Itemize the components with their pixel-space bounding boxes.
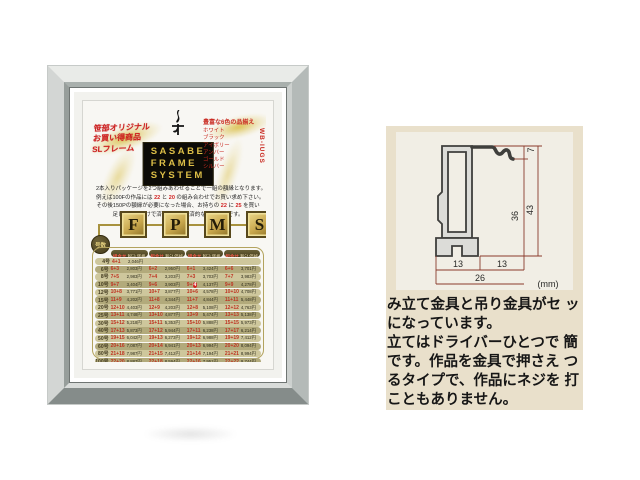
text-segment: 例えば100Fの作品には	[96, 195, 154, 201]
table-row: 6号6+32,803円6+22,950円6+13,424円6+63,701円	[95, 266, 261, 273]
price-cell: 12+124,763円	[223, 305, 261, 311]
combo-value: 20+13	[187, 343, 203, 349]
price-value: 3,771円	[127, 289, 142, 295]
price-value: 4,278円	[241, 282, 256, 288]
dim-13-left: 13	[453, 259, 463, 269]
price-cell: 22+188,594円	[147, 359, 185, 362]
price-value: 4,877円	[165, 312, 180, 318]
price-value: 5,944円	[165, 328, 180, 334]
combo-value: 13+9	[187, 312, 203, 318]
price-cell: 11+115,448円	[223, 297, 261, 303]
row-size-label: 100号	[95, 358, 109, 362]
combo-header-label: 組合せ	[150, 254, 164, 257]
combo-value: 7+5	[111, 274, 127, 280]
highlight-dot: 4	[193, 282, 198, 288]
spec-text-line: こともありません。	[387, 391, 582, 410]
combo-value: 7+7	[225, 274, 241, 280]
text-segment: の組み合わせでお買い求め下さい。	[175, 195, 265, 201]
combo-value: 11+8	[149, 297, 165, 303]
table-row: 12号10+83,771円10+73,877円10+64,578円10+104,…	[95, 289, 261, 296]
price-value: 2,983円	[127, 274, 142, 280]
fpms-box-f: F	[120, 211, 147, 238]
dim-43: 43	[525, 205, 535, 215]
combo-value: 10+10	[225, 289, 241, 295]
price-header-label: 税込価格	[201, 254, 220, 257]
price-cell: 15+105,888円	[185, 320, 223, 326]
price-cell: 13+114,748円	[109, 312, 147, 318]
combo-value: 21+18	[111, 351, 127, 357]
price-cell: 4+12,046円	[110, 259, 152, 265]
poster: 笹部オリジナルお買い得商品SLフレーム SASABEFRAMESYSTEM 豊富…	[90, 108, 266, 362]
price-value: 8,994円	[241, 351, 256, 357]
combo-value: 13+13	[225, 312, 241, 318]
spec-text-line: になっています。	[387, 315, 582, 334]
price-header-label: 税込価格	[164, 254, 183, 257]
brand-line: FRAME	[151, 158, 206, 170]
fpms-box-m: M	[204, 211, 231, 238]
combo-value: 19+15	[111, 335, 127, 341]
table-row: 8号7+52,983円7+43,203円7+33,703円7+73,983円	[95, 273, 261, 280]
row-size-label: 6号	[95, 266, 109, 273]
combo-value: 17+12	[149, 328, 165, 334]
dim-36: 36	[510, 211, 520, 221]
row-size-label: 40号	[95, 327, 109, 334]
text-segment: を買い	[242, 203, 260, 209]
combo-header-label: 組合せ	[113, 254, 127, 257]
aluminum-frame-lip: 笹部オリジナルお買い得商品SLフレーム SASABEFRAMESYSTEM 豊富…	[64, 82, 292, 388]
combo-value: 22+18	[149, 359, 165, 362]
description-line: 2本入りパッケージを2つ組みあわせることで一組の額縁となります。	[96, 185, 260, 194]
price-cell: 7+52,983円	[109, 274, 147, 280]
price-cell: 10+104,708円	[223, 289, 261, 295]
price-cell: 17+135,873円	[109, 328, 147, 334]
combo-value: 6+2	[149, 266, 165, 272]
fpms-row: FPMS 号数	[90, 211, 266, 243]
price-value: 6,273円	[165, 335, 180, 341]
table-row: 25号13+114,748円13+104,877円13+95,474円13+13…	[95, 312, 261, 319]
price-header-label: 税込価格	[239, 254, 258, 257]
dim-26: 26	[475, 273, 485, 283]
price-value: 5,353円	[165, 320, 180, 326]
price-cell: 9+94,278円	[223, 282, 261, 288]
price-table: 組合せ 税込価格組合せ 税込価格組合せ 税込価格組合せ 税込価格 4号4+12,…	[92, 247, 264, 359]
spec-text-line: です。作品を金具で押さえ つ	[387, 353, 582, 372]
combo-value: 11+11	[225, 297, 241, 303]
table-row: 4号4+12,046円	[95, 258, 261, 265]
spec-text-line: 立てはドライバーひとつで 簡	[387, 334, 582, 353]
combo-value: 20+20	[225, 343, 241, 349]
combo-value: 11+7	[187, 297, 203, 303]
row-size-label: 12号	[95, 289, 109, 296]
combo-value: 19+13	[149, 335, 165, 341]
price-cell: 21+218,994円	[223, 351, 261, 357]
price-cell: 7+43,203円	[147, 274, 185, 280]
combo-value: 9+9	[225, 282, 241, 288]
combo-value: 15+11	[149, 320, 165, 326]
price-value: 4,763円	[241, 305, 256, 311]
price-cell: 6+63,701円	[223, 266, 261, 272]
table-row: 60号20+167,087円20+146,941円20+136,994円20+2…	[95, 343, 261, 350]
price-value: 5,888円	[203, 320, 218, 326]
description-line: その後150Pの額縁が必要になった場合、お持ちの 22 に 25 を買い	[96, 202, 260, 211]
price-cell: 11+84,344円	[147, 297, 185, 303]
dim-unit: (mm)	[538, 279, 559, 289]
price-cell: 7+73,983円	[223, 274, 261, 280]
price-value: 3,877円	[165, 289, 180, 295]
table-header-badge: 組合せ 税込価格	[224, 250, 261, 257]
price-cell: 9+44,137円	[185, 282, 223, 288]
fpms-box-p: P	[162, 211, 189, 238]
spec-panel: 7 36 43 13 13 26 (mm) み立て金具と吊り金具がセ ッになって…	[386, 126, 583, 410]
row-size-label: 30号	[95, 320, 109, 327]
combo-value: 20+14	[149, 343, 165, 349]
price-cell: 17+125,944円	[147, 328, 185, 334]
price-value: 4,202円	[127, 297, 142, 303]
price-value: 3,703円	[203, 274, 218, 280]
brand-line: SASABE	[151, 146, 206, 158]
table-row: 20号12+104,403円12+94,203円12+85,108円12+124…	[95, 304, 261, 311]
price-value: 6,941円	[165, 343, 180, 349]
price-value: 6,238円	[203, 328, 218, 334]
table-row: 15号11+94,202円11+84,344円11+74,844円11+115,…	[95, 296, 261, 303]
dim-7: 7	[526, 147, 536, 152]
price-cell: 9+73,404円	[109, 282, 147, 288]
fpms-box-s: S	[246, 211, 266, 238]
price-value: 7,412円	[241, 335, 256, 341]
price-value: 7,087円	[127, 343, 142, 349]
price-value: 2,803円	[127, 266, 142, 272]
price-value: 5,973円	[241, 320, 256, 326]
combo-value: 12+12	[225, 305, 241, 311]
price-cell: 12+85,108円	[185, 305, 223, 311]
price-cell: 19+156,042円	[109, 335, 147, 341]
floor-shadow	[143, 426, 238, 442]
price-value: 9,744円	[241, 359, 256, 362]
table-row: 10号9+73,404円9+63,903円9+44,137円9+94,278円	[95, 281, 261, 288]
price-value: 5,448円	[241, 297, 256, 303]
combo-value: 7+4	[149, 274, 165, 280]
combo-value: 12+9	[149, 305, 165, 311]
price-cell: 10+64,578円	[185, 289, 223, 295]
price-cell: 17+176,214円	[223, 328, 261, 334]
combo-value: 22+22	[225, 359, 241, 362]
page: 笹部オリジナルお買い得商品SLフレーム SASABEFRAMESYSTEM 豊富…	[0, 0, 640, 480]
combo-value: 13+10	[149, 312, 165, 318]
price-value: 7,412円	[165, 351, 180, 357]
combo-value: 10+6	[187, 289, 203, 295]
price-cell: 10+73,877円	[147, 289, 185, 295]
price-cell: 6+13,424円	[185, 266, 223, 272]
text-segment: と	[160, 195, 169, 201]
price-cell: 20+208,094円	[223, 343, 261, 349]
sasabe-bird-logo-icon	[169, 109, 187, 144]
price-cell: 7+33,703円	[185, 274, 223, 280]
text-segment: 2本入りパッケージを2つ組みあわせることで一組の額縁となります。	[96, 186, 266, 192]
price-value: 6,988円	[203, 335, 218, 341]
price-value: 3,203円	[165, 274, 180, 280]
color-option: ブラック	[203, 135, 256, 142]
description-line: 例えば100Fの作品には 22 と 20 の組み合わせでお買い求め下さい。	[96, 194, 260, 203]
price-value: 7,987円	[127, 351, 142, 357]
price-value: 5,138円	[241, 312, 256, 318]
row-size-label: 50号	[95, 335, 109, 342]
price-cell: 13+135,138円	[223, 312, 261, 318]
table-row: 30号15+125,218円15+115,353円15+105,888円15+1…	[95, 320, 261, 327]
color-option: アイボリー	[203, 143, 256, 150]
combo-value: 21+14	[187, 351, 203, 357]
combo-value: 6+3	[111, 266, 127, 272]
combo-value: 11+9	[111, 297, 127, 303]
price-value: 4,748円	[127, 312, 142, 318]
combo-value: 22+20	[111, 359, 127, 362]
combo-value: 9+6	[149, 282, 165, 288]
price-value: 2,046円	[128, 259, 143, 265]
brand-line: SYSTEM	[151, 170, 206, 182]
combo-value: 12+8	[187, 305, 203, 311]
combo-value: 9+7	[111, 282, 127, 288]
price-cell: 15+115,353円	[147, 320, 185, 326]
combo-value: 15+10	[187, 320, 203, 326]
combo-value: 6+6	[225, 266, 241, 272]
price-value: 6,214円	[241, 328, 256, 334]
table-row: 80号21+187,987円21+157,412円21+147,194円21+2…	[95, 350, 261, 357]
price-cell: 15+155,973円	[223, 320, 261, 326]
combo-value: 15+15	[225, 320, 241, 326]
price-value: 2,950円	[165, 266, 180, 272]
color-codes-vertical: WB-IUGS	[258, 128, 265, 172]
combo-value: 19+19	[225, 335, 241, 341]
combo-value: 12+10	[111, 305, 127, 311]
color-lineup: 豊富な6色の品揃え ホワイトブラックアイボリーアンバーゴールドシルバー WB-I…	[203, 117, 265, 172]
price-cell: 20+167,087円	[109, 343, 147, 349]
combo-value: 17+17	[225, 328, 241, 334]
price-value: 8,594円	[165, 359, 180, 362]
table-row: 40号17+135,873円17+125,944円17+116,238円17+1…	[95, 327, 261, 334]
row-size-label: 8号	[95, 273, 109, 280]
combo-value: 13+11	[111, 312, 127, 318]
price-cell: 10+83,771円	[109, 289, 147, 295]
combo-value: 17+13	[111, 328, 127, 334]
profile-diagram-svg: 7 36 43 13 13 26 (mm)	[396, 132, 573, 290]
price-value: 5,873円	[127, 328, 142, 334]
price-cell: 13+95,474円	[185, 312, 223, 318]
table-row: 100号22+208,887円22+188,594円22+167,951円22+…	[95, 358, 261, 362]
price-cell: 12+104,403円	[109, 305, 147, 311]
combo-value: 4+1	[112, 259, 128, 265]
price-value: 8,094円	[241, 343, 256, 349]
combo-value: 7+3	[187, 274, 203, 280]
price-cell: 22+229,744円	[223, 359, 261, 362]
color-name-list: ホワイトブラックアイボリーアンバーゴールドシルバー	[203, 128, 256, 172]
price-header-label: 税込価格	[126, 254, 145, 257]
spec-text-line: み立て金具と吊り金具がセ ッ	[387, 296, 582, 315]
price-cell: 6+22,950円	[147, 266, 185, 272]
combo-value: 22+16	[187, 359, 203, 362]
combo-value: 19+12	[187, 335, 203, 341]
price-value: 4,203円	[165, 305, 180, 311]
price-value: 3,701円	[241, 266, 256, 272]
frame-photo: 笹部オリジナルお買い得商品SLフレーム SASABEFRAMESYSTEM 豊富…	[48, 66, 308, 404]
price-cell: 9+63,903円	[147, 282, 185, 288]
price-value: 3,424円	[203, 266, 218, 272]
price-cell: 19+126,988円	[185, 335, 223, 341]
price-cell: 19+197,412円	[223, 335, 261, 341]
combo-value: 20+16	[111, 343, 127, 349]
price-value: 7,951円	[203, 359, 218, 362]
price-value: 5,474円	[203, 312, 218, 318]
table-header-badge: 組合せ 税込価格	[149, 250, 186, 257]
price-value: 6,042円	[127, 335, 142, 341]
combo-value: 21+15	[149, 351, 165, 357]
price-cell: 22+167,951円	[185, 359, 223, 362]
price-cell: 22+208,887円	[109, 359, 147, 362]
row-size-label: 80号	[95, 350, 109, 357]
combo-value: 10+8	[111, 289, 127, 295]
price-value: 4,344円	[165, 297, 180, 303]
combo-header-label: 組合せ	[188, 254, 202, 257]
table-row: 50号19+156,042円19+136,273円19+126,988円19+1…	[95, 335, 261, 342]
price-value: 5,108円	[203, 305, 218, 311]
price-value: 7,194円	[203, 351, 218, 357]
price-cell: 21+157,412円	[147, 351, 185, 357]
row-size-label: 4号	[95, 258, 110, 265]
row-size-label: 10号	[95, 281, 109, 288]
text-segment: その後150Pの額縁が必要になった場合、お持ちの	[96, 203, 220, 209]
price-cell: 15+125,218円	[109, 320, 147, 326]
combo-value: 10+7	[149, 289, 165, 295]
spec-text-line: るタイプで、作品にネジを 打	[387, 372, 582, 391]
price-cell: 11+94,202円	[109, 297, 147, 303]
price-value: 4,708円	[241, 289, 256, 295]
combo-value: 21+21	[225, 351, 241, 357]
price-value: 3,903円	[165, 282, 180, 288]
color-option: シルバー	[203, 164, 256, 171]
price-cell: 20+146,941円	[147, 343, 185, 349]
combo-header-label: 組合せ	[225, 254, 239, 257]
price-cell: 19+136,273円	[147, 335, 185, 341]
combo-value: 15+12	[111, 320, 127, 326]
frame-mat: 笹部オリジナルお買い得商品SLフレーム SASABEFRAMESYSTEM 豊富…	[74, 92, 282, 378]
price-cell: 6+32,803円	[109, 266, 147, 272]
row-size-label: 15号	[95, 297, 109, 304]
price-cell: 21+147,194円	[185, 351, 223, 357]
row-size-label: 25号	[95, 312, 109, 319]
table-header-badge: 組合せ 税込価格	[111, 250, 148, 257]
row-size-label: 60号	[95, 343, 109, 350]
table-header-badge: 組合せ 税込価格	[186, 250, 223, 257]
profile-cross-section-diagram: 7 36 43 13 13 26 (mm)	[396, 132, 573, 290]
price-cell: 13+104,877円	[147, 312, 185, 318]
combo-value: 17+11	[187, 328, 203, 334]
price-value: 4,844円	[203, 297, 218, 303]
price-cell: 20+136,994円	[185, 343, 223, 349]
price-table-header: 組合せ 税込価格組合せ 税込価格組合せ 税込価格組合せ 税込価格	[111, 250, 261, 257]
price-cell: 21+187,987円	[109, 351, 147, 357]
price-value: 3,404円	[127, 282, 142, 288]
row-size-label: 20号	[95, 304, 109, 311]
color-lineup-heading: 豊富な6色の品揃え	[203, 117, 265, 126]
price-cell: 11+74,844円	[185, 297, 223, 303]
combo-value: 9+4	[187, 282, 203, 288]
dim-13-right: 13	[497, 259, 507, 269]
combo-value: 6+1	[187, 266, 203, 272]
price-value: 6,994円	[203, 343, 218, 349]
price-value: 4,403円	[127, 305, 142, 311]
price-value: 4,137円	[203, 282, 218, 288]
price-value: 5,218円	[127, 320, 142, 326]
price-cell: 12+94,203円	[147, 305, 185, 311]
price-value: 8,887円	[127, 359, 142, 362]
spec-description: み立て金具と吊り金具がセ ッになっています。立てはドライバーひとつで 簡です。作…	[386, 294, 583, 410]
price-value: 4,578円	[203, 289, 218, 295]
price-value: 3,983円	[241, 274, 256, 280]
price-cell: 17+116,238円	[185, 328, 223, 334]
